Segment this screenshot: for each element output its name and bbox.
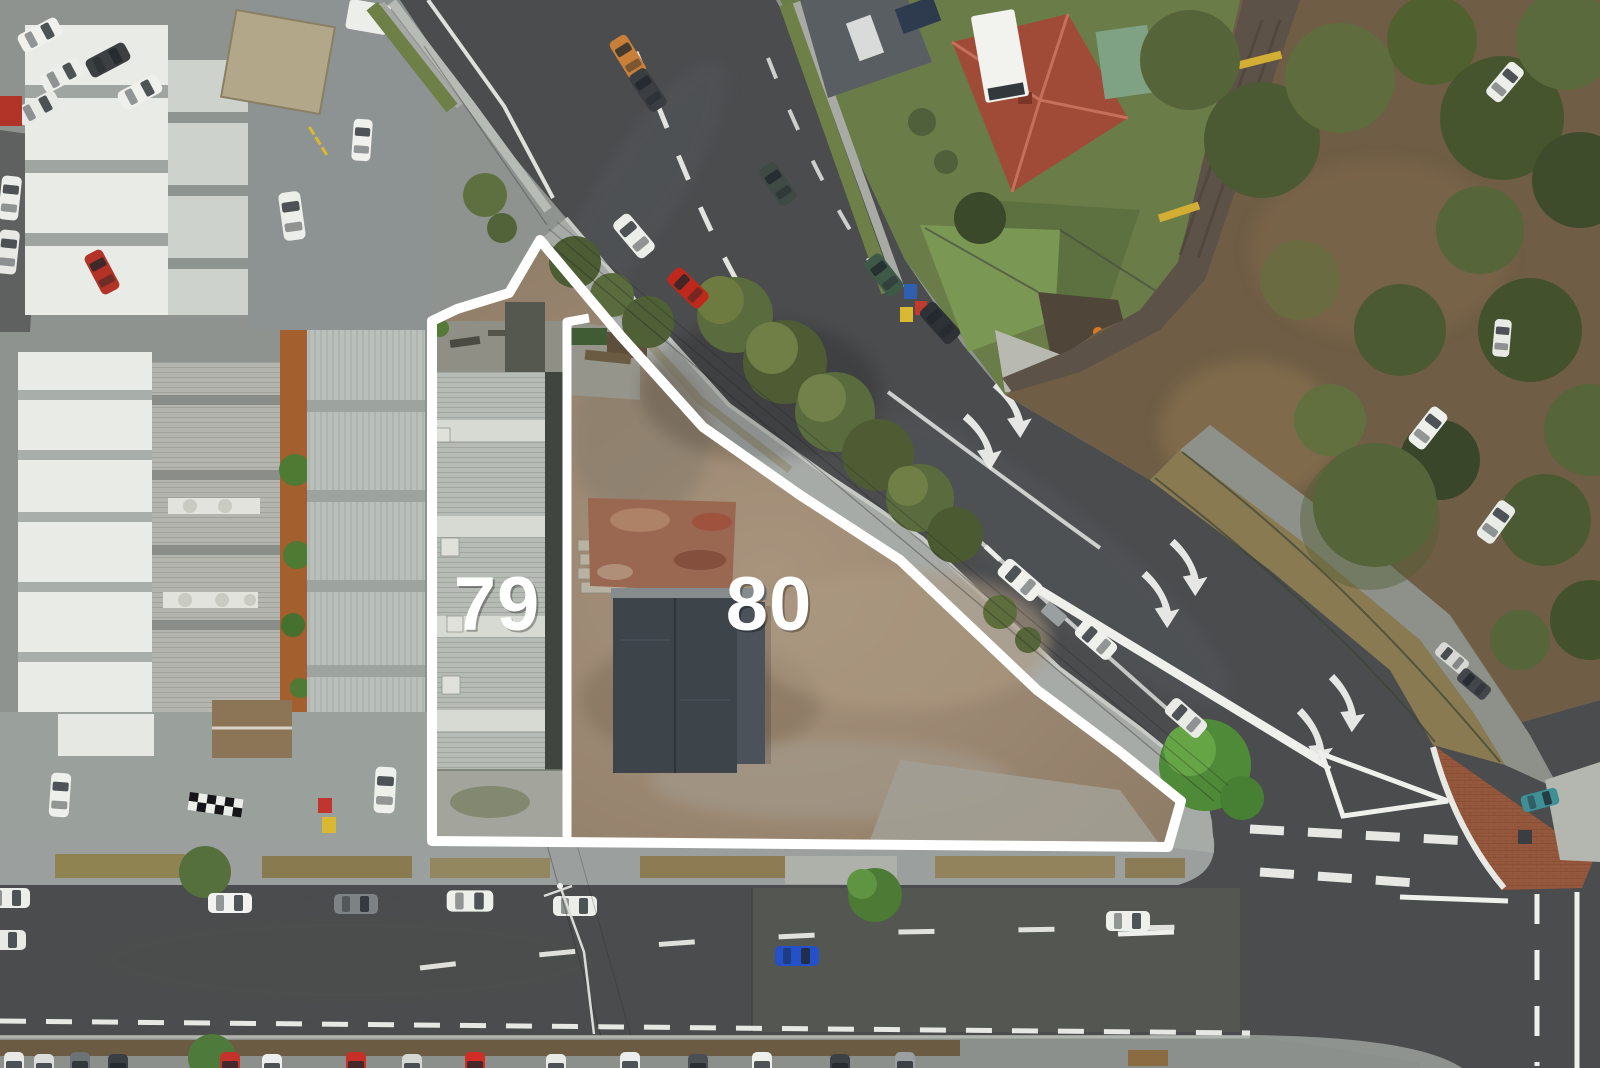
bottom-parking-strip: [0, 1034, 1420, 1068]
parked-car: [1492, 319, 1512, 358]
lot-79-label: 79: [454, 562, 541, 647]
blue-bin: [904, 284, 917, 299]
yellow-bin: [900, 307, 913, 322]
blue-car: [775, 946, 819, 966]
rust-strip: [280, 330, 307, 712]
lot-80-label: 80: [726, 562, 813, 647]
red-bin: [318, 798, 332, 813]
green-container: [571, 328, 607, 345]
aerial-photo: 79 79 80 80: [0, 0, 1600, 1068]
industrial-block: [0, 0, 432, 840]
yellow-bin: [322, 817, 336, 833]
